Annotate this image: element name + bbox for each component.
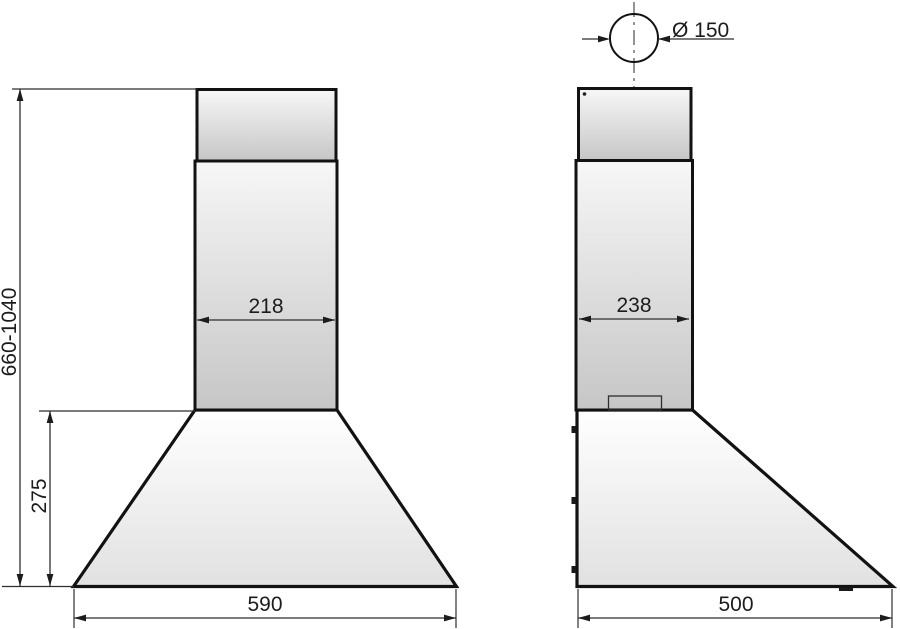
dim-body-width-label: 590 xyxy=(247,593,282,616)
dim-duct-diameter-label: Ø 150 xyxy=(672,19,729,42)
side-view: Ø 150 238 500 xyxy=(572,2,894,628)
wall-tab-top xyxy=(572,426,577,433)
arrow-up-icon xyxy=(47,411,54,423)
dim-body-width: 590 xyxy=(74,589,456,628)
arrow-down-icon xyxy=(17,574,24,586)
dim-chimney-depth-label: 238 xyxy=(616,294,651,317)
arrow-left-icon xyxy=(658,36,670,43)
hood-dimension-drawing: 218 660-1040 275 590 xyxy=(0,0,900,629)
side-lower-chimney-section xyxy=(576,161,693,411)
arrow-right-icon xyxy=(444,615,456,622)
arrow-up-icon xyxy=(17,89,24,101)
dim-chimney-width-label: 218 xyxy=(248,295,283,318)
side-canopy-body xyxy=(577,410,893,587)
dim-overall-height-label: 660-1040 xyxy=(0,288,21,377)
dim-canopy-height-label: 275 xyxy=(28,478,51,513)
arrow-right-icon xyxy=(880,615,892,622)
front-upper-chimney-section xyxy=(197,90,336,162)
wall-tab-middle xyxy=(572,497,577,504)
dim-body-depth: 500 xyxy=(578,589,892,628)
arrow-right-icon xyxy=(598,36,610,43)
screw-dot-icon xyxy=(583,92,587,96)
technical-drawing-page: 218 660-1040 275 590 xyxy=(0,0,900,629)
dim-duct-diameter: Ø 150 xyxy=(582,19,734,42)
base-tab xyxy=(839,588,853,592)
arrow-down-icon xyxy=(47,574,54,586)
dim-body-depth-label: 500 xyxy=(718,593,753,616)
front-canopy-body xyxy=(74,410,457,587)
arrow-left-icon xyxy=(74,615,86,622)
arrow-left-icon xyxy=(578,615,590,622)
wall-tab-bottom xyxy=(572,566,577,573)
side-upper-chimney-section xyxy=(579,89,692,161)
front-lower-chimney-section xyxy=(195,161,337,410)
front-view: 218 660-1040 275 590 xyxy=(0,89,457,628)
